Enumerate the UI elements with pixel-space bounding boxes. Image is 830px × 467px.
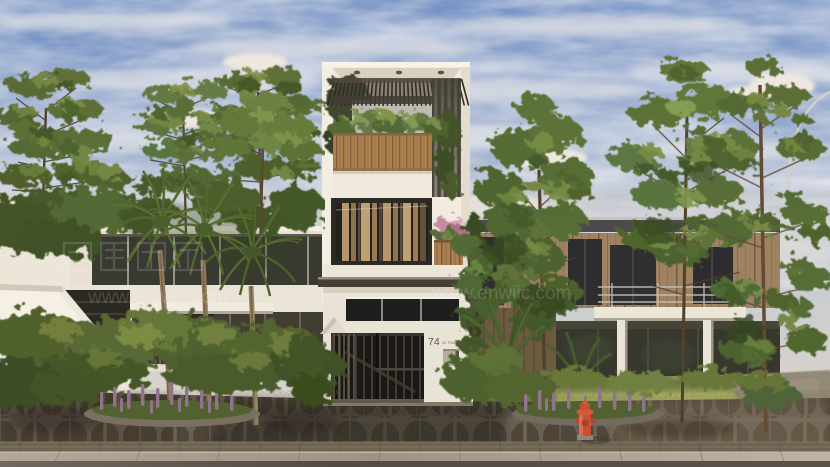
svg-text:www.enwiic.com: www.enwiic.com [87, 287, 227, 308]
svg-text:www.enwiic.com: www.enwiic.com [431, 283, 571, 304]
